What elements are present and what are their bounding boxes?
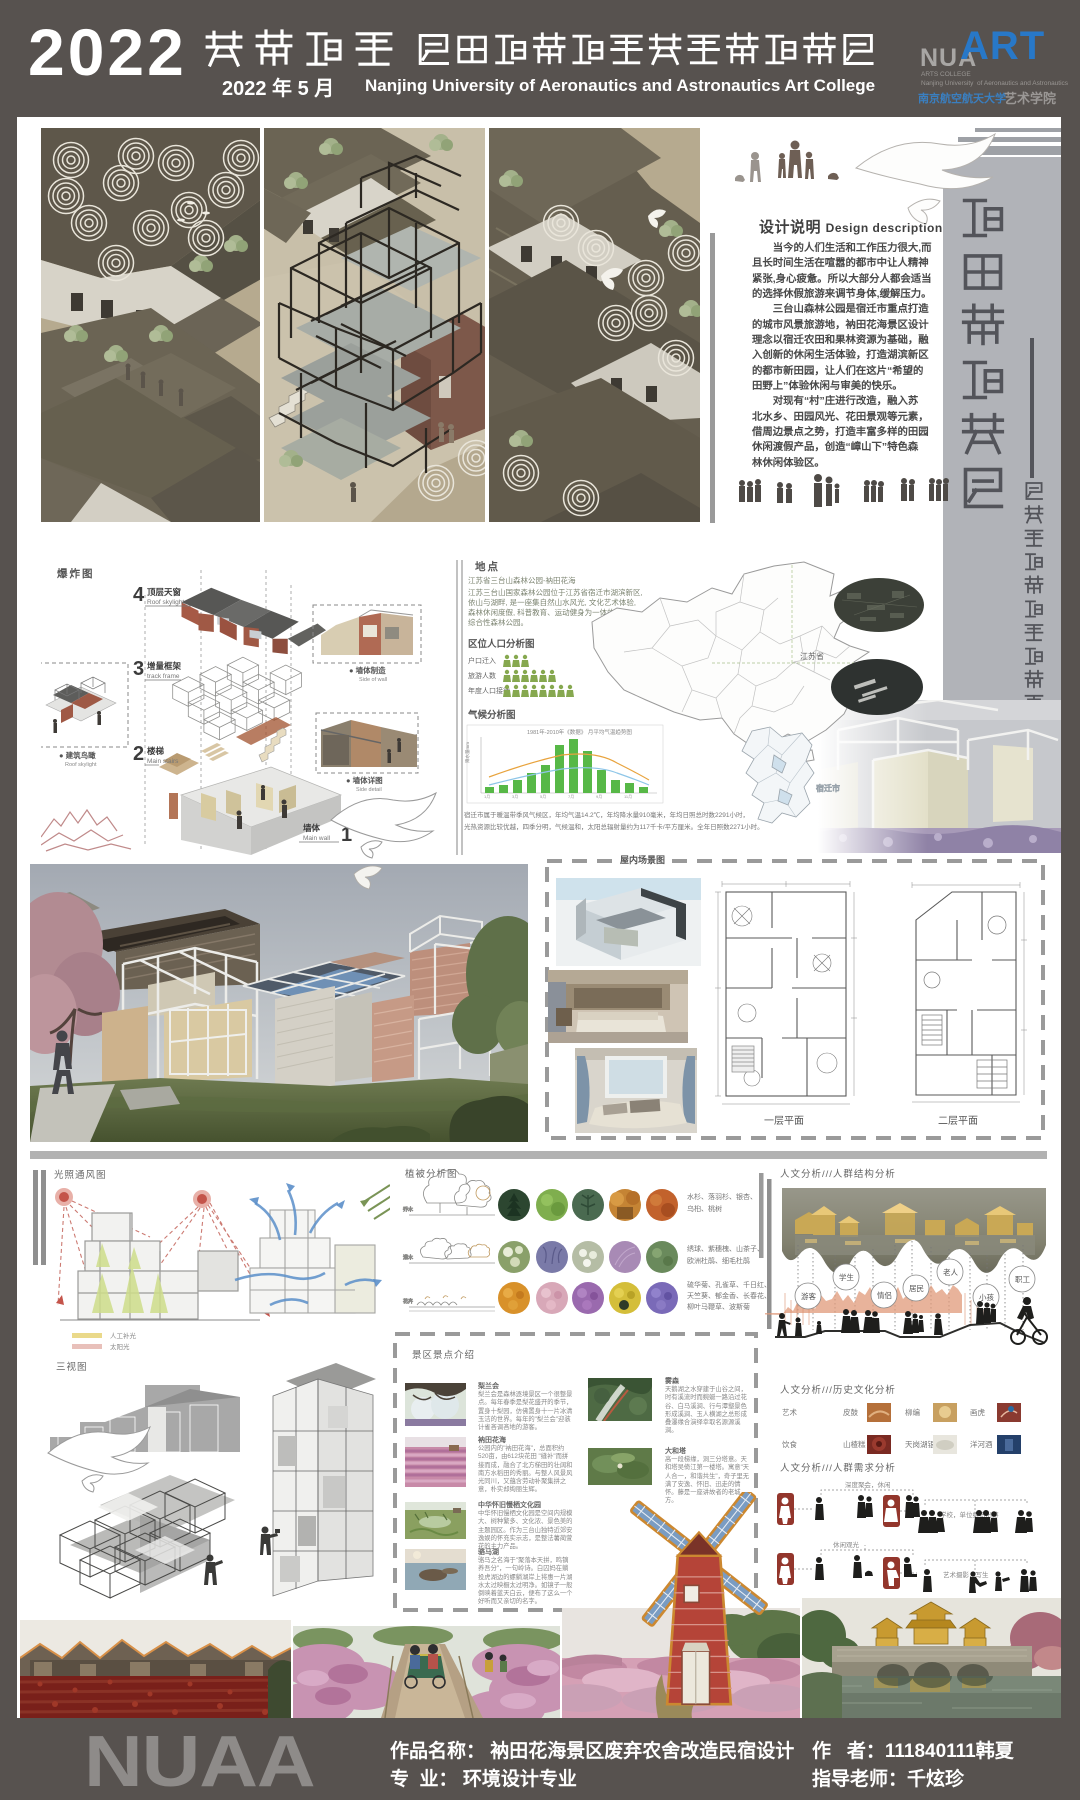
svg-text:休闲观光: 休闲观光: [833, 1540, 860, 1549]
svg-text:增量框架: 增量框架: [147, 661, 182, 671]
svg-text:乌桕、桃树: 乌桕、桃树: [687, 1204, 722, 1213]
svg-text:1月: 1月: [484, 794, 490, 799]
svg-text:墙体: 墙体: [303, 823, 321, 833]
svg-text:区位人口分析图: 区位人口分析图: [468, 638, 535, 650]
svg-text:三视图: 三视图: [56, 1361, 88, 1373]
svg-text:皮鼓: 皮鼓: [843, 1407, 858, 1417]
svg-text:山楂糕: 山楂糕: [843, 1439, 866, 1449]
svg-text:艺术: 艺术: [782, 1407, 797, 1417]
svg-text:学生: 学生: [839, 1272, 854, 1282]
svg-text:Main wall: Main wall: [303, 835, 331, 842]
svg-text:1981年-2010年《数据》 月平均气温趋势图: 1981年-2010年《数据》 月平均气温趋势图: [527, 728, 632, 736]
svg-text:老人: 老人: [943, 1267, 958, 1277]
svg-text:9月: 9月: [596, 794, 602, 799]
svg-text:2: 2: [133, 743, 144, 765]
svg-text:花卉: 花卉: [403, 1298, 413, 1305]
svg-text:4: 4: [133, 584, 145, 606]
svg-text:灌木: 灌木: [403, 1254, 413, 1261]
svg-text:爆炸图: 爆炸图: [57, 567, 95, 580]
svg-text:3月: 3月: [512, 794, 518, 799]
svg-text:森林休闲度假, 科普教育、运动健身为一体的: 森林休闲度假, 科普教育、运动健身为一体的: [468, 607, 615, 617]
svg-text:光照通风图: 光照通风图: [54, 1169, 107, 1181]
svg-text:Roof skylight: Roof skylight: [147, 599, 184, 606]
svg-text:职工: 职工: [1015, 1275, 1031, 1284]
svg-text:柳编: 柳编: [905, 1407, 920, 1417]
svg-text:楼梯: 楼梯: [147, 746, 165, 756]
svg-text:宿迁市属于暖温带季风气候区，年均气温14.2℃，年均降水量9: 宿迁市属于暖温带季风气候区，年均气温14.2℃，年均降水量910毫米，年均日照总…: [464, 810, 749, 819]
svg-text:地点: 地点: [475, 560, 500, 573]
svg-text:柳叶马鞭草、波斯菊: 柳叶马鞭草、波斯菊: [687, 1302, 750, 1311]
svg-text:宿迁市: 宿迁市: [816, 783, 840, 793]
svg-text:欧洲杜鹃、细毛杜鹃: 欧洲杜鹃、细毛杜鹃: [687, 1256, 750, 1265]
svg-text:太阳光: 太阳光: [110, 1342, 130, 1351]
svg-text:人文分析///人群需求分析: 人文分析///人群需求分析: [780, 1462, 896, 1474]
svg-text:居民: 居民: [909, 1284, 924, 1293]
svg-text:Roof skylight: Roof skylight: [65, 762, 97, 768]
svg-text:5月: 5月: [540, 794, 546, 799]
svg-text:绣球、紫穗槐、山茶子、: 绣球、紫穗槐、山茶子、: [687, 1244, 764, 1253]
svg-text:洋河酒: 洋河酒: [970, 1439, 993, 1449]
svg-text:3: 3: [133, 658, 144, 680]
svg-text:江苏省: 江苏省: [800, 651, 824, 661]
svg-text:学校，单位组织出游: 学校，单位组织出游: [940, 1510, 999, 1519]
svg-text:硫华菊、孔雀草、千日红、: 硫华菊、孔雀草、千日红、: [687, 1280, 770, 1289]
svg-text:乔木: 乔木: [403, 1206, 413, 1213]
svg-text:天竺葵、郁金香、长春花、: 天竺葵、郁金香、长春花、: [687, 1291, 770, 1300]
svg-text:人文分析///历史文化分析: 人文分析///历史文化分析: [780, 1384, 896, 1396]
svg-text:降水量mm: 降水量mm: [464, 742, 471, 763]
svg-text:情侣: 情侣: [877, 1290, 892, 1300]
svg-text:7月: 7月: [568, 794, 574, 799]
svg-text:综合性森林公园。: 综合性森林公园。: [468, 617, 528, 627]
svg-text:深度聚会，休闲: 深度聚会，休闲: [845, 1480, 891, 1489]
svg-text:人工补光: 人工补光: [110, 1331, 137, 1340]
svg-text:人文分析///人群结构分析: 人文分析///人群结构分析: [780, 1168, 896, 1180]
svg-text:江苏省三台山森林公园-衲田花海: 江苏省三台山森林公园-衲田花海: [468, 575, 576, 585]
svg-text:水杉、落羽杉、银杏、: 水杉、落羽杉、银杏、: [687, 1192, 757, 1201]
svg-text:● 墙体详图: ● 墙体详图: [346, 775, 383, 785]
svg-text:小孩: 小孩: [979, 1292, 994, 1302]
svg-text:江苏三台山国家森林公园位于江苏省宿迁市湖滨新区,: 江苏三台山国家森林公园位于江苏省宿迁市湖滨新区,: [468, 587, 643, 597]
svg-text:11月: 11月: [624, 794, 632, 799]
svg-text:顶层天窗: 顶层天窗: [147, 587, 182, 597]
svg-text:旅游人数: 旅游人数: [468, 671, 496, 680]
svg-text:track frame: track frame: [147, 673, 180, 680]
svg-text:画虎: 画虎: [970, 1407, 985, 1417]
svg-text:依山与湖畔, 是一座集自然山水风光, 文化艺术体验,: 依山与湖畔, 是一座集自然山水风光, 文化艺术体验,: [468, 597, 636, 607]
svg-text:Main stairs: Main stairs: [147, 758, 179, 765]
svg-text:光热资源比较优越，四季分明，气候温和，太阳总辐射量约为117: 光热资源比较优越，四季分明，气候温和，太阳总辐射量约为117千卡/平方厘米。全年…: [464, 822, 764, 831]
svg-text:户口迁入: 户口迁入: [468, 656, 496, 665]
svg-text:Side detail: Side detail: [356, 787, 382, 793]
svg-text:艺术摄影，写生: 艺术摄影，写生: [943, 1570, 989, 1579]
svg-text:● 建筑鸟瞰: ● 建筑鸟瞰: [59, 750, 96, 760]
svg-text:游客: 游客: [801, 1291, 816, 1301]
svg-text:饮食: 饮食: [782, 1439, 797, 1449]
svg-text:Side of wall: Side of wall: [359, 677, 387, 683]
svg-text:● 墙体制造: ● 墙体制造: [349, 665, 386, 675]
svg-text:气候分析图: 气候分析图: [467, 709, 516, 721]
